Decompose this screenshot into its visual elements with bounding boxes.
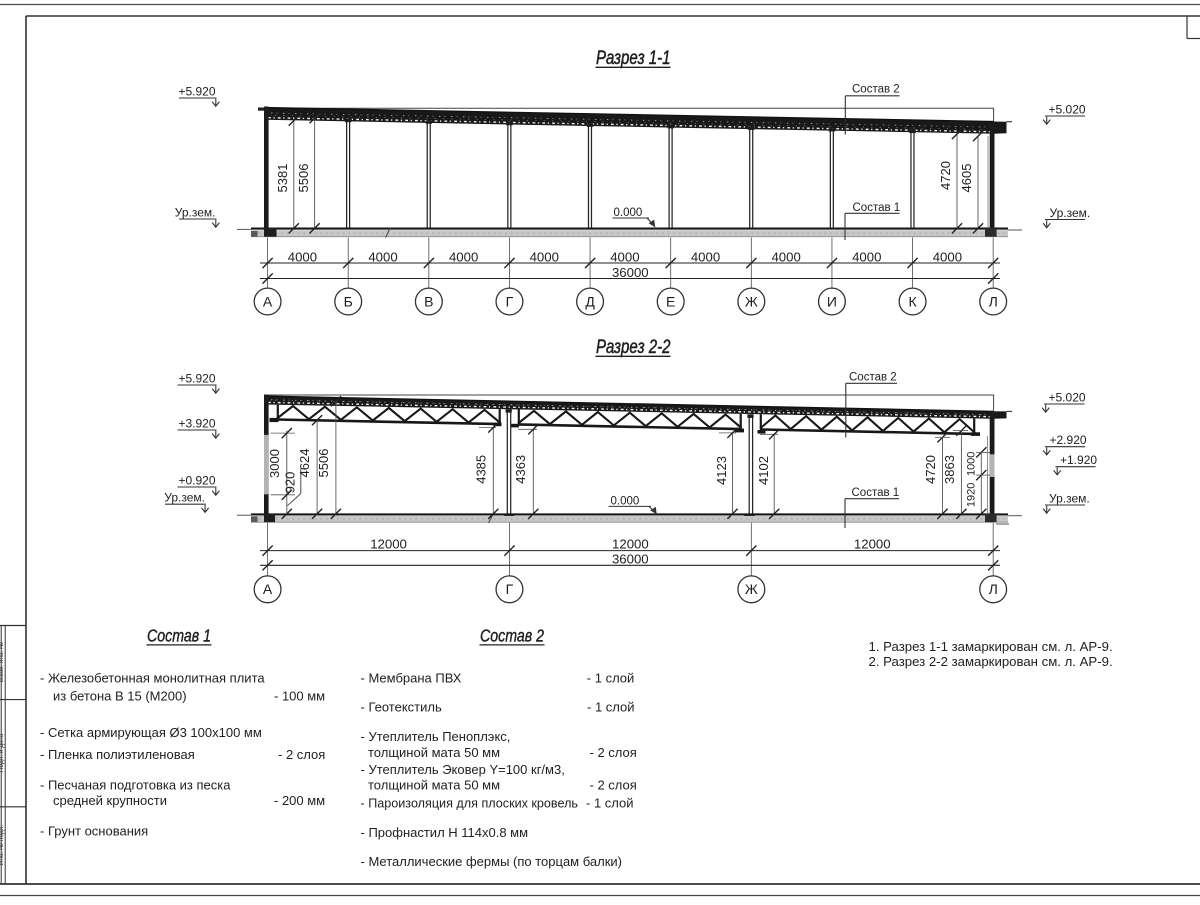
svg-text:1000: 1000	[965, 452, 977, 476]
svg-text:Ур.зем.: Ур.зем.	[164, 491, 205, 505]
svg-text:Состав 1: Состав 1	[147, 626, 211, 646]
svg-text:Л: Л	[989, 293, 998, 309]
svg-text:Состав 1: Состав 1	[852, 487, 900, 499]
svg-text:- 2 слоя: - 2 слоя	[590, 745, 637, 760]
svg-text:4720: 4720	[923, 455, 938, 484]
svg-text:+5.020: +5.020	[1049, 391, 1086, 405]
svg-text:Б: Б	[344, 293, 353, 309]
svg-text:Состав 2: Состав 2	[849, 372, 897, 384]
svg-text:Г: Г	[506, 581, 514, 597]
svg-text:5506: 5506	[296, 164, 311, 193]
svg-text:+2.920: +2.920	[1050, 433, 1087, 447]
svg-text:Г: Г	[506, 293, 514, 309]
svg-text:Ж: Ж	[745, 293, 758, 309]
svg-text:4000: 4000	[368, 249, 397, 264]
svg-text:+3.920: +3.920	[178, 417, 215, 431]
svg-text:4720: 4720	[938, 161, 953, 190]
svg-text:толщиной мата 50 мм: толщиной мата 50 мм	[368, 745, 500, 760]
svg-text:+1.920: +1.920	[1060, 453, 1097, 467]
svg-text:4000: 4000	[852, 249, 881, 264]
svg-text:Ж: Ж	[745, 581, 758, 597]
svg-text:- Грунт основания: - Грунт основания	[40, 824, 148, 839]
svg-text:4363: 4363	[513, 455, 528, 484]
svg-text:4000: 4000	[288, 249, 317, 264]
svg-text:- 100 мм: - 100 мм	[274, 689, 325, 704]
svg-text:+0.920: +0.920	[178, 474, 215, 488]
svg-text:12000: 12000	[854, 536, 891, 551]
svg-text:Ур.зем.: Ур.зем.	[1050, 206, 1091, 220]
svg-text:12000: 12000	[612, 536, 649, 551]
svg-text:- Пароизоляция для плоских кро: - Пароизоляция для плоских кровель	[361, 796, 579, 811]
svg-text:- 200 мм: - 200 мм	[274, 793, 325, 808]
svg-text:Инв. № подл.: Инв. № подл.	[0, 825, 5, 866]
svg-text:4000: 4000	[449, 249, 478, 264]
svg-text:Взам. инв. №: Взам. инв. №	[0, 642, 5, 682]
svg-text:36000: 36000	[612, 265, 649, 280]
svg-text:+5.020: +5.020	[1049, 103, 1086, 117]
svg-text:Ур.зем.: Ур.зем.	[175, 206, 216, 220]
svg-text:2. Разрез 2-2 замаркирован см.: 2. Разрез 2-2 замаркирован см. л. АР-9.	[869, 654, 1113, 669]
svg-text:Разрез 1-1: Разрез 1-1	[596, 48, 671, 69]
svg-text:4000: 4000	[691, 249, 720, 264]
svg-text:толщиной мата 50 мм: толщиной мата 50 мм	[368, 778, 500, 793]
svg-text:- 2 слоя: - 2 слоя	[590, 778, 637, 793]
svg-text:- Утеплитель Эковер Y=100 кг/м: - Утеплитель Эковер Y=100 кг/м3,	[361, 762, 565, 777]
svg-text:из бетона В 15 (М200): из бетона В 15 (М200)	[53, 689, 187, 704]
svg-text:Состав 2: Состав 2	[852, 84, 900, 96]
svg-text:А: А	[263, 581, 273, 597]
svg-text:5381: 5381	[275, 164, 290, 193]
svg-text:- Пленка полиэтиленовая: - Пленка полиэтиленовая	[40, 747, 195, 762]
svg-text:- 1 слой: - 1 слой	[587, 700, 635, 715]
svg-text:средней крупности: средней крупности	[53, 793, 167, 808]
svg-text:4000: 4000	[610, 249, 639, 264]
svg-text:1. Разрез 1-1 замаркирован см.: 1. Разрез 1-1 замаркирован см. л. АР-9.	[869, 639, 1113, 654]
svg-text:+5.920: +5.920	[178, 85, 215, 99]
svg-text:4000: 4000	[771, 249, 800, 264]
svg-text:4624: 4624	[297, 449, 312, 478]
svg-text:Л: Л	[989, 581, 998, 597]
svg-text:Состав 1: Состав 1	[853, 202, 901, 214]
svg-text:12000: 12000	[370, 536, 407, 551]
svg-text:- 1 слой: - 1 слой	[587, 671, 635, 686]
svg-text:1920: 1920	[965, 483, 977, 507]
svg-text:4000: 4000	[933, 249, 962, 264]
svg-text:36000: 36000	[612, 552, 649, 567]
svg-text:Е: Е	[666, 293, 675, 309]
svg-text:А: А	[263, 293, 273, 309]
svg-text:5506: 5506	[316, 449, 331, 478]
svg-text:- Железобетонная монолитная п: - Железобетонная монолитная плита	[40, 671, 265, 686]
svg-text:4000: 4000	[530, 249, 559, 264]
svg-text:Ур.зем.: Ур.зем.	[1049, 492, 1090, 506]
svg-text:3863: 3863	[942, 455, 957, 484]
svg-text:920: 920	[282, 472, 297, 494]
svg-text:0.000: 0.000	[614, 207, 643, 219]
svg-text:- 2 слоя: - 2 слоя	[278, 747, 325, 762]
svg-text:- Геотекстиль: - Геотекстиль	[361, 700, 442, 715]
svg-text:- Мембрана ПВХ: - Мембрана ПВХ	[361, 671, 462, 686]
svg-text:4385: 4385	[474, 455, 489, 484]
svg-text:3000: 3000	[267, 449, 282, 478]
svg-text:4102: 4102	[756, 456, 771, 485]
svg-text:- 1 слой: - 1 слой	[586, 796, 634, 811]
svg-text:- Профнастил Н 114х0.8 мм: - Профнастил Н 114х0.8 мм	[361, 825, 529, 840]
svg-text:- Металлические фермы (по торц: - Металлические фермы (по торцам балки)	[361, 854, 622, 869]
svg-text:И: И	[827, 293, 837, 309]
svg-text:- Песчаная подготовка из песка: - Песчаная подготовка из песка	[40, 778, 231, 793]
svg-text:4605: 4605	[959, 164, 974, 193]
svg-text:4123: 4123	[714, 456, 729, 485]
svg-text:Подп. и дата: Подп. и дата	[0, 733, 5, 772]
svg-text:0.000: 0.000	[611, 495, 640, 507]
svg-text:Состав 2: Состав 2	[480, 626, 544, 646]
svg-text:Разрез 2-2: Разрез 2-2	[596, 337, 671, 358]
svg-text:К: К	[908, 293, 917, 309]
svg-text:- Сетка армирующая Ø3 100х100: - Сетка армирующая Ø3 100х100 мм	[40, 725, 262, 740]
svg-text:Д: Д	[585, 293, 595, 309]
svg-text:В: В	[424, 293, 433, 309]
svg-text:+5.920: +5.920	[178, 372, 215, 386]
svg-text:- Утеплитель Пеноплэкс,: - Утеплитель Пеноплэкс,	[361, 729, 511, 744]
